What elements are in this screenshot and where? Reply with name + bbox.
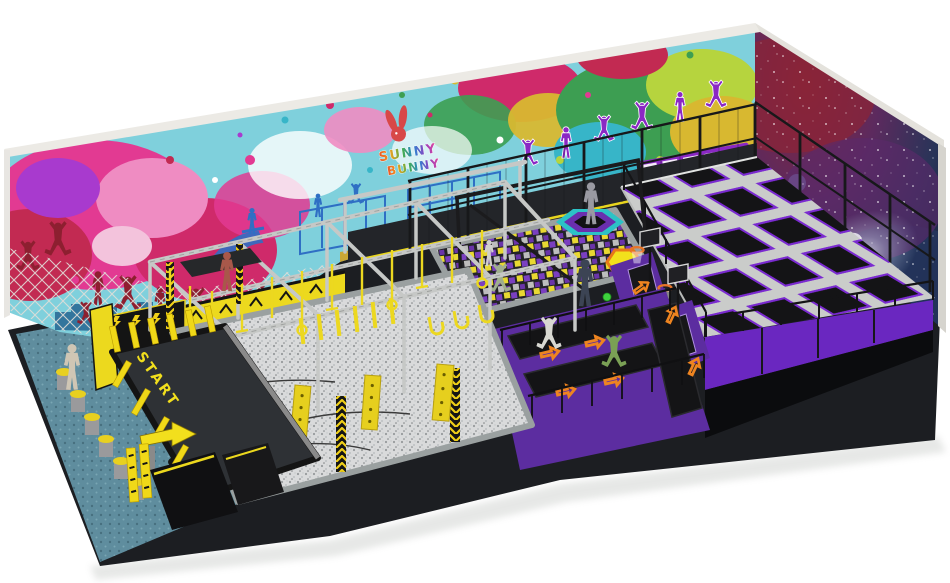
wall-rim-galaxy-right <box>938 143 946 333</box>
backboard <box>640 228 660 248</box>
backboard <box>668 264 688 284</box>
scene-canvas: SUNNY BUNNY <box>0 0 950 583</box>
wall-rim-left-edge <box>4 150 10 318</box>
green-ball <box>603 293 611 301</box>
trampoline-park-render: SUNNY BUNNY <box>0 0 950 583</box>
hoop-net <box>632 252 642 263</box>
